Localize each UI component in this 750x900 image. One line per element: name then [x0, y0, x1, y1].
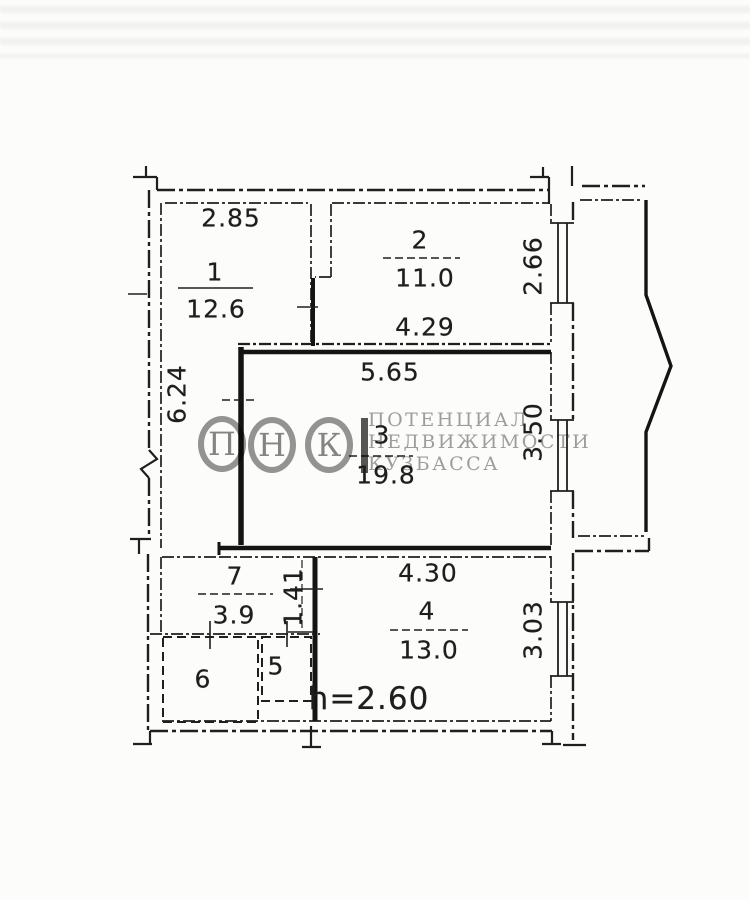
- watermark-ring-1: П: [198, 416, 246, 472]
- dim-room2-width: 4.29: [395, 313, 455, 342]
- watermark-letter: П: [208, 428, 236, 460]
- room2-area: 11.0: [395, 264, 455, 293]
- floor-plan-page: П Н К ПОТЕНЦИАЛ НЕДВИЖИМОСТИ КУЗБАССА 2.…: [0, 0, 750, 900]
- watermark-ring-2: Н: [248, 417, 296, 473]
- room5-number: 5: [268, 652, 285, 681]
- watermark-ring-3: К: [305, 417, 353, 473]
- window-room4: [550, 602, 574, 676]
- balcony: [578, 200, 671, 536]
- watermark-text-line: ПОТЕНЦИАЛ: [368, 410, 529, 430]
- light-partitions: [150, 621, 320, 722]
- watermark-letter: К: [317, 429, 342, 461]
- room1-area: 12.6: [186, 295, 246, 324]
- dim-hall-opening: 1.41: [279, 567, 308, 627]
- window-room2: [550, 223, 574, 303]
- room3-area: 19.8: [356, 461, 416, 490]
- room4-number: 4: [419, 597, 436, 626]
- room7-number: 7: [227, 562, 244, 591]
- room2-number: 2: [412, 226, 429, 255]
- watermark-text-line: НЕДВИЖИМОСТИ: [368, 432, 591, 452]
- room1-number: 1: [207, 258, 224, 287]
- dim-room1-width: 2.85: [201, 204, 261, 233]
- dim-left-wall-height: 6.24: [163, 364, 192, 424]
- watermark-letter: Н: [258, 429, 286, 461]
- dim-room3-depth: 3.50: [519, 402, 548, 462]
- room6-number: 6: [195, 665, 212, 694]
- room3-number: 3: [374, 421, 391, 450]
- room4-area: 13.0: [399, 636, 459, 665]
- dim-room4-depth: 3.03: [519, 600, 548, 660]
- dim-room3-width: 5.65: [360, 358, 420, 387]
- room7-area: 3.9: [213, 601, 256, 630]
- dim-room4-width: 4.30: [398, 559, 458, 588]
- dim-room2-depth: 2.66: [519, 236, 548, 296]
- ceiling-height-label: h=2.60: [309, 681, 430, 717]
